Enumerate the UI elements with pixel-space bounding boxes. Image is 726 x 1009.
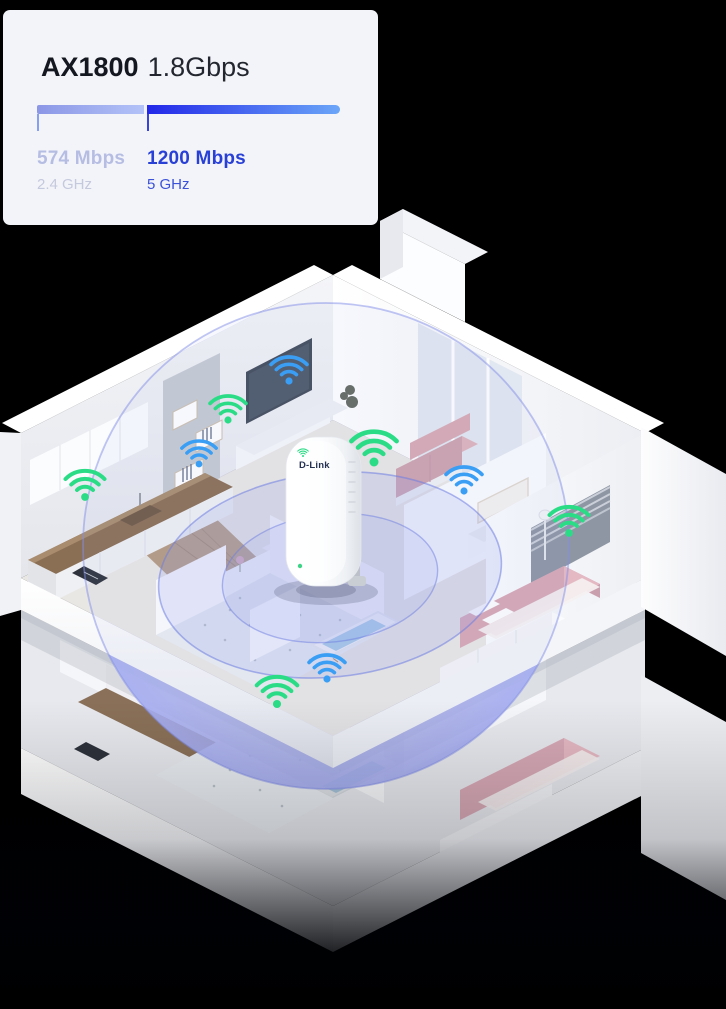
bandwidth-bar-5ghz — [147, 105, 340, 114]
band-labels: 574 Mbps 2.4 GHz 1200 Mbps 5 GHz — [37, 148, 246, 193]
band-5ghz-freq: 5 GHz — [147, 176, 246, 193]
band-5ghz: 1200 Mbps 5 GHz — [147, 148, 246, 193]
model-name: AX1800 — [41, 52, 139, 82]
bandwidth-bar — [37, 105, 340, 114]
device-brand-logo: D-Link — [299, 460, 330, 471]
model-speed: 1.8Gbps — [148, 52, 250, 82]
band-5ghz-speed: 1200 Mbps — [147, 148, 246, 170]
band-2ghz: 574 Mbps 2.4 GHz — [37, 148, 147, 193]
band-2ghz-speed: 574 Mbps — [37, 148, 147, 170]
band-2ghz-freq: 2.4 GHz — [37, 176, 147, 193]
bottom-fade — [0, 700, 726, 1009]
bandwidth-bar-2ghz — [37, 105, 144, 114]
left-wall-end — [0, 432, 21, 616]
hero-banner: D-Link AX18001.8Gbps 574 Mbps 2.4 GHz 12… — [0, 0, 726, 1009]
device-status-led — [298, 564, 302, 568]
tick-2ghz — [37, 114, 39, 131]
tick-5ghz — [147, 114, 149, 131]
spec-card: AX18001.8Gbps 574 Mbps 2.4 GHz 1200 Mbps… — [3, 10, 378, 225]
card-title: AX18001.8Gbps — [41, 52, 250, 83]
